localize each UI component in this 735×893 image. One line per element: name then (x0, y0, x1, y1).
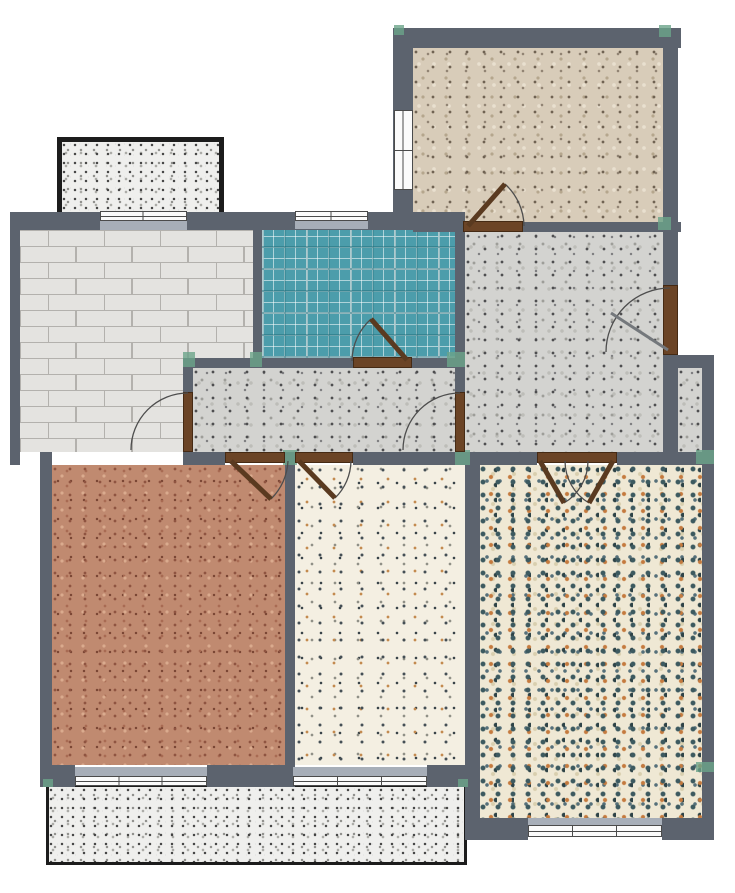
room-bathroom[interactable] (262, 229, 455, 358)
wall-brick-bathroom-divider (253, 212, 262, 368)
window-sill (293, 767, 427, 776)
balcony-bottom-floor (49, 787, 464, 862)
window-sill (75, 767, 207, 776)
window-cream-bottom[interactable] (293, 776, 427, 786)
junction-accent (394, 25, 404, 35)
bathroom-door[interactable] (353, 357, 412, 368)
balcony-top-floor (62, 142, 219, 212)
junction-accent (447, 352, 465, 367)
wall-salmon-left (40, 452, 52, 787)
junction-accent (455, 450, 470, 465)
window-salmon-bottom[interactable] (75, 776, 207, 786)
room-duct-nook[interactable] (678, 368, 702, 452)
wall-bedroom-top (393, 28, 681, 48)
junction-accent (43, 779, 53, 787)
wall-salmon-cream-divider (285, 465, 295, 787)
junction-accent (659, 25, 671, 37)
room-living[interactable] (465, 232, 663, 452)
junction-accent (183, 352, 195, 367)
room-balcony-top[interactable] (57, 137, 224, 212)
wall-brick-left (10, 212, 20, 465)
wall-hallway-top-left (183, 358, 353, 368)
hall-living-door[interactable] (455, 392, 465, 452)
junction-accent (696, 762, 714, 772)
room-hallway[interactable] (193, 368, 455, 452)
floor-plan-canvas (0, 0, 735, 893)
wall-right-upper (663, 28, 678, 285)
wall-mid-strip-1 (183, 452, 225, 465)
wall-bottom-left-2 (207, 765, 293, 787)
wall-bottom-left-3 (427, 765, 480, 787)
cream-room-door[interactable] (295, 452, 353, 463)
room-bedroom-top-right[interactable] (413, 48, 663, 222)
junction-accent (658, 217, 671, 230)
double-door[interactable] (537, 452, 617, 463)
junction-accent (696, 450, 714, 464)
window-brick-top[interactable] (100, 211, 187, 221)
junction-accent (458, 779, 468, 787)
brick-room-door[interactable] (183, 392, 193, 452)
room-balcony-bottom[interactable] (46, 784, 467, 865)
room-bedroom-salmon[interactable] (52, 465, 285, 765)
junction-accent (250, 352, 262, 367)
wall-bottom-right-1 (465, 818, 528, 840)
room-confetti[interactable] (480, 465, 702, 818)
window-sill (100, 220, 187, 230)
wall-mid-strip-2 (353, 452, 537, 465)
window-sill (528, 818, 662, 825)
wall-right-mid (663, 355, 678, 462)
window-sill (295, 220, 368, 229)
salmon-bedroom-door[interactable] (225, 452, 285, 463)
bedroom-door[interactable] (463, 221, 523, 232)
room-cream[interactable] (295, 465, 465, 765)
window-bathroom[interactable] (295, 211, 368, 221)
window-bedroom-left[interactable] (394, 110, 413, 190)
window-confetti-bottom[interactable] (528, 825, 662, 837)
entry-door[interactable] (663, 285, 678, 355)
